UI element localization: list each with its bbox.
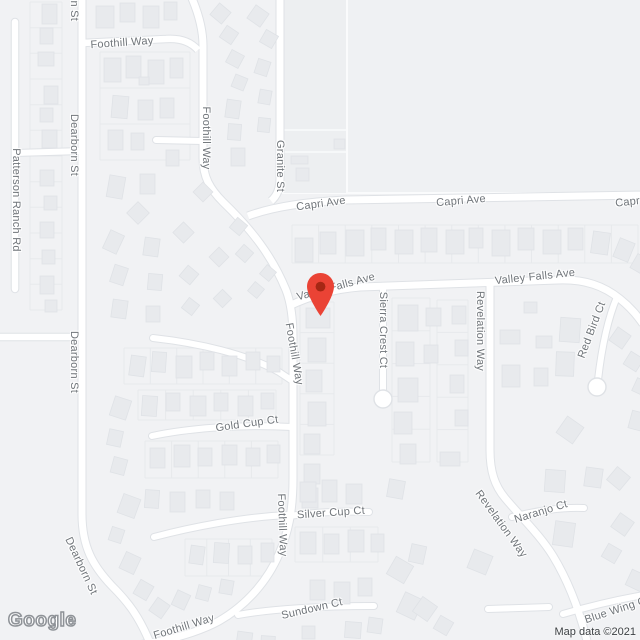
map-graphics xyxy=(0,0,640,640)
google-logo[interactable]: Google xyxy=(8,610,76,632)
map-data-attribution: Map data ©2021 xyxy=(555,626,637,638)
pin-body xyxy=(307,273,334,316)
map-canvas[interactable]: Dearborn StFoothill WayDearborn StPatter… xyxy=(0,0,640,640)
pin-dot xyxy=(315,282,325,292)
map-pin[interactable] xyxy=(307,273,334,316)
land-blocks xyxy=(283,0,640,193)
